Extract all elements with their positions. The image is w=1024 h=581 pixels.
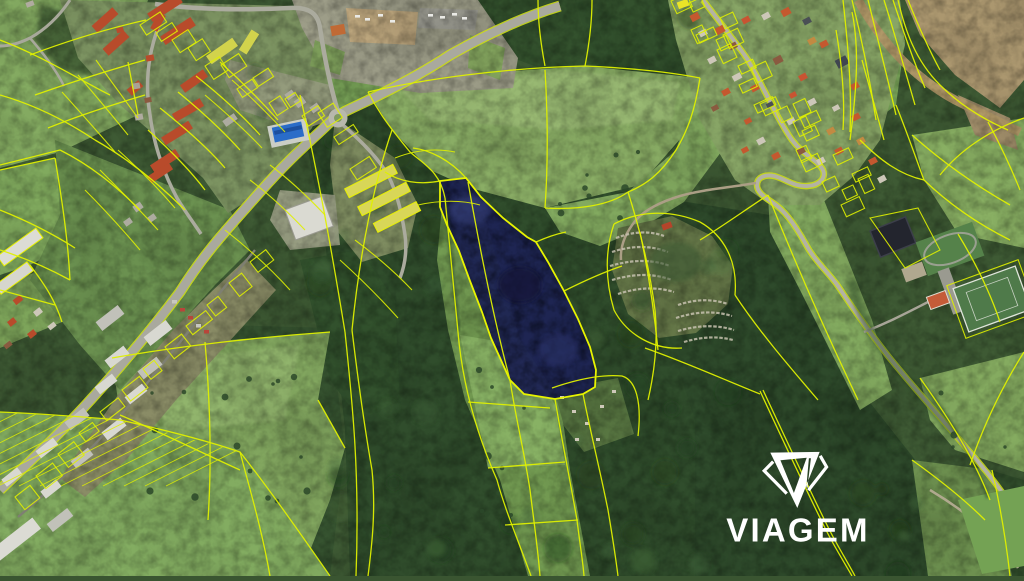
svg-text:VIAGEM: VIAGEM	[726, 512, 869, 549]
